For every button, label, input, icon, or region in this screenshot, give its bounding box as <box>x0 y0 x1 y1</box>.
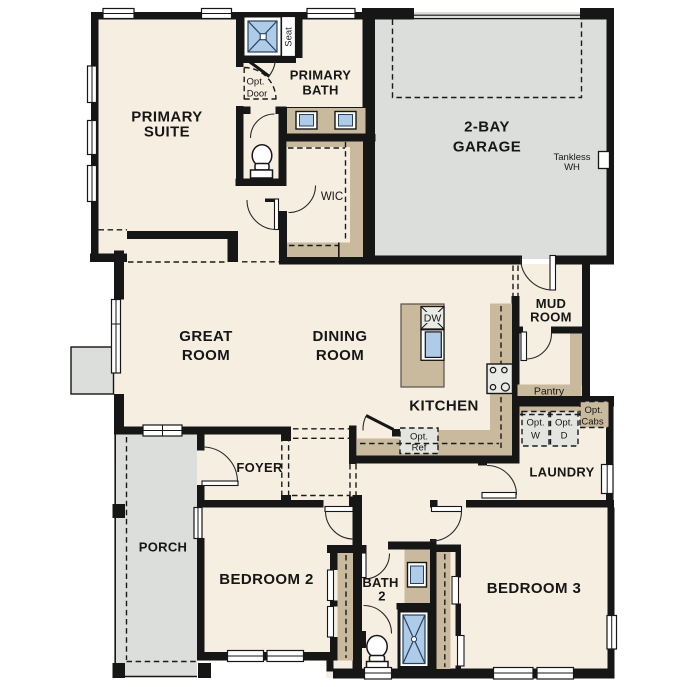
svg-text:LAUNDRY: LAUNDRY <box>529 465 594 480</box>
svg-text:BEDROOM 2: BEDROOM 2 <box>219 571 313 588</box>
svg-text:Opt.: Opt. <box>555 418 573 429</box>
svg-text:BATH: BATH <box>302 83 338 98</box>
svg-text:PORCH: PORCH <box>139 540 187 555</box>
svg-text:W: W <box>531 431 540 442</box>
svg-text:WH: WH <box>564 162 580 173</box>
svg-text:BEDROOM 3: BEDROOM 3 <box>487 580 581 597</box>
svg-text:Opt.: Opt. <box>410 432 428 443</box>
svg-text:Ref: Ref <box>412 443 427 454</box>
svg-text:SUITE: SUITE <box>144 124 190 141</box>
svg-text:FOYER: FOYER <box>236 460 283 475</box>
svg-text:PRIMARY: PRIMARY <box>290 68 352 83</box>
svg-text:GREAT: GREAT <box>179 328 232 345</box>
svg-text:WIC: WIC <box>321 191 343 203</box>
svg-text:2-BAY: 2-BAY <box>464 119 510 136</box>
svg-text:Door: Door <box>247 89 268 100</box>
svg-text:ROOM: ROOM <box>316 347 364 364</box>
svg-text:Pantry: Pantry <box>534 386 565 398</box>
svg-text:Opt.: Opt. <box>585 405 603 416</box>
svg-text:Opt.: Opt. <box>247 77 265 88</box>
svg-text:GARAGE: GARAGE <box>453 139 521 156</box>
svg-text:Cabs: Cabs <box>581 417 603 428</box>
svg-text:Opt.: Opt. <box>527 418 545 429</box>
svg-text:Seat: Seat <box>284 27 295 47</box>
svg-text:ROOM: ROOM <box>530 310 572 325</box>
svg-text:DINING: DINING <box>313 328 368 345</box>
svg-text:D: D <box>561 431 568 442</box>
svg-text:ROOM: ROOM <box>182 347 230 364</box>
svg-text:DW: DW <box>424 313 442 325</box>
svg-text:KITCHEN: KITCHEN <box>409 398 478 415</box>
svg-text:2: 2 <box>378 589 386 604</box>
